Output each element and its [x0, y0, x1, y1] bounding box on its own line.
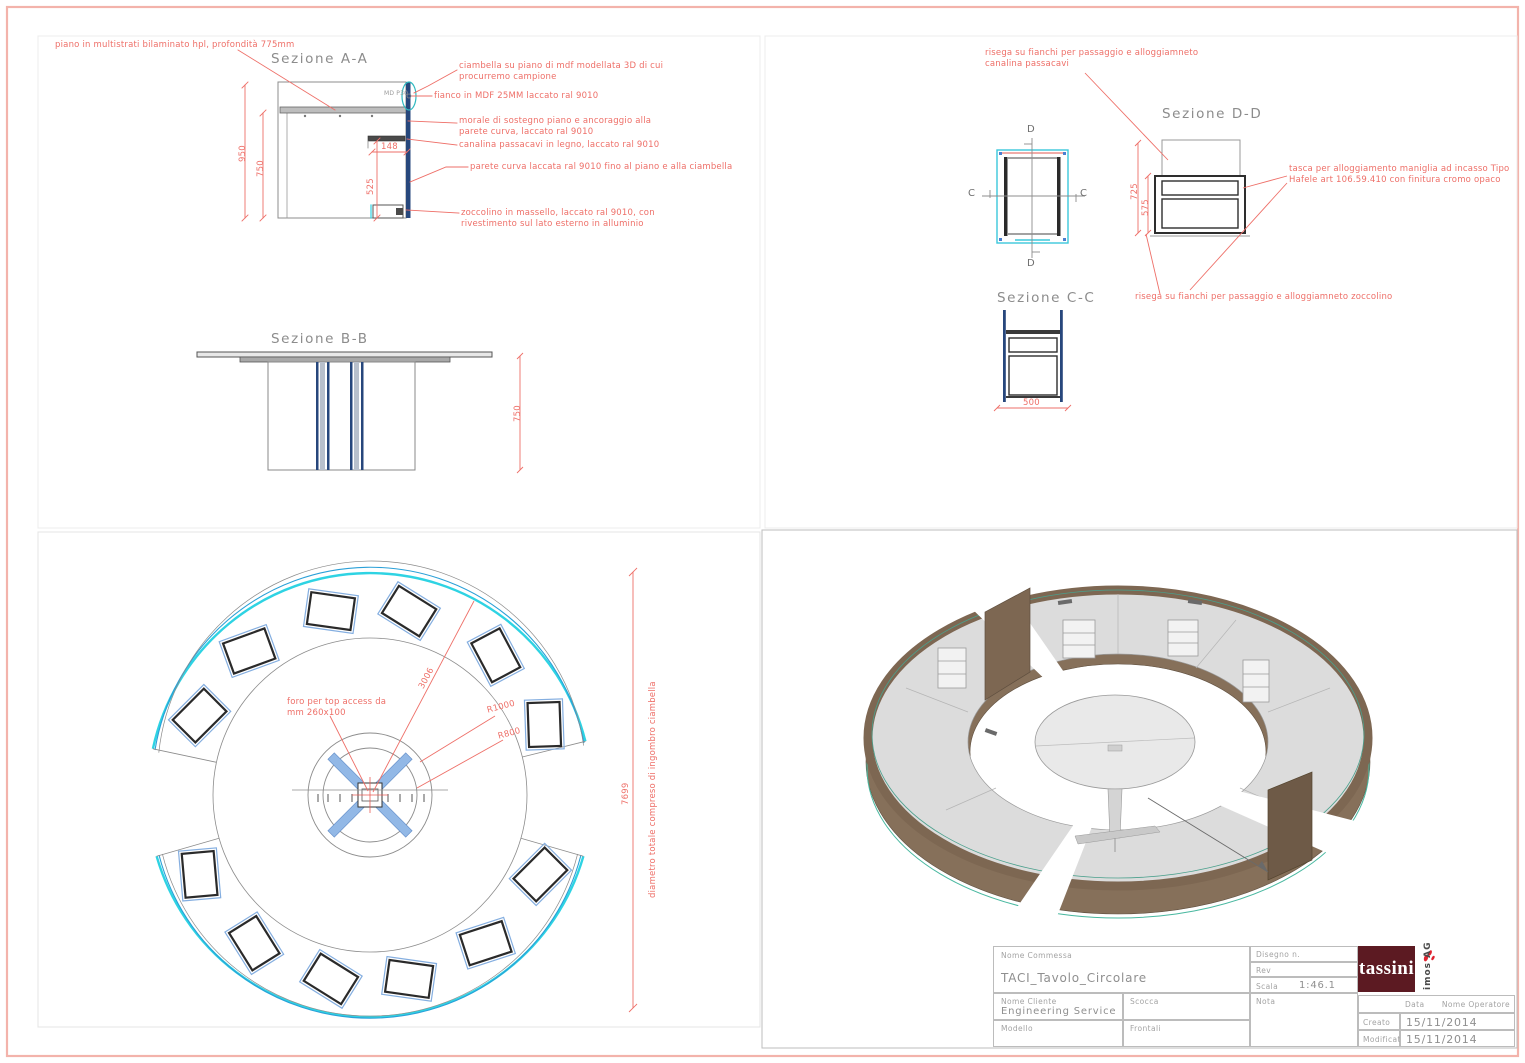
cut-label-c-right: C [1080, 188, 1087, 201]
scocca-label: Scocca [1130, 997, 1159, 1006]
rev-label: Rev [1256, 966, 1271, 975]
scala-label: Scala [1256, 982, 1278, 991]
circular-table-plan [153, 561, 637, 1018]
dim-575: 575 [1141, 199, 1152, 216]
nome-commessa-value: TACI_Tavolo_Circolare [1001, 971, 1147, 985]
annotation-piano: piano in multistrati bilaminato hpl, pro… [55, 40, 295, 51]
creato-label-cell: Creato [1358, 1013, 1400, 1030]
drawing-sheet: piano in multistrati bilaminato hpl, pro… [0, 0, 1525, 1063]
annotation-tasca: tasca per alloggiamento maniglia ad inca… [1289, 164, 1514, 185]
dim-750-bb: 750 [513, 405, 524, 422]
dim-725: 725 [1130, 183, 1141, 200]
scala-cell: Scala 1:46.1 [1250, 977, 1358, 993]
modello-cell: Modello [993, 1020, 1123, 1047]
creato-label: Creato [1363, 1018, 1390, 1027]
frontali-cell: Frontali [1123, 1020, 1250, 1047]
modificato-value: 15/11/2014 [1406, 1033, 1477, 1046]
isometric-view [866, 548, 1390, 960]
dim-750-aa: 750 [256, 160, 267, 177]
nota-label: Nota [1256, 997, 1275, 1006]
annotation-zoccolino: zoccolino in massello, laccato ral 9010,… [461, 208, 693, 229]
scala-value: 1:46.1 [1299, 980, 1336, 991]
cut-label-d-bottom: D [1027, 258, 1035, 271]
disegno-label: Disegno n. [1256, 950, 1300, 959]
section-bb-drawing [197, 352, 523, 473]
section-cc-title: Sezione C-C [997, 290, 1095, 307]
data-label: Data [1405, 1000, 1425, 1009]
hatch-label: MD P30 [384, 90, 408, 98]
annotation-canalina: canalina passacavi in legno, laccato ral… [459, 140, 659, 151]
creato-value-cell: 15/11/2014 [1400, 1013, 1515, 1030]
modificato-value-cell: 15/11/2014 [1400, 1030, 1515, 1047]
tassini-logo-text: tassini [1359, 958, 1414, 980]
scocca-cell: Scocca [1123, 993, 1250, 1020]
cut-label-d-top: D [1027, 124, 1035, 137]
modificato-label-cell: Modificato [1358, 1030, 1400, 1047]
nota-cell: Nota [1250, 993, 1358, 1047]
annotation-parete: parete curva laccata ral 9010 fino al pi… [470, 162, 732, 173]
commessa-cell: Nome Commessa TACI_Tavolo_Circolare [993, 946, 1250, 993]
frontali-label: Frontali [1130, 1024, 1161, 1033]
annotation-diametro: diametro totale compreso di ingombro cia… [648, 681, 659, 898]
imos-logo-text: imos AG [1423, 942, 1433, 991]
creato-value: 15/11/2014 [1406, 1016, 1477, 1029]
center-table-plan [292, 733, 448, 857]
annotation-foro: foro per top access da mm 260x100 [287, 697, 405, 718]
dim-500: 500 [1023, 398, 1040, 409]
annotation-risega-canalina: risega su fianchi per passaggio e allogg… [985, 48, 1223, 69]
dim-7699: 7699 [621, 783, 632, 805]
section-cc-drawing [994, 310, 1071, 411]
annotation-ciambella: ciambella su piano di mdf modellata 3D d… [459, 61, 677, 82]
dim-950: 950 [238, 145, 249, 162]
modello-label: Modello [1001, 1024, 1033, 1033]
section-dd-title: Sezione D-D [1162, 106, 1262, 123]
drawing-geometry [0, 0, 1525, 1063]
section-bb-title: Sezione B-B [271, 331, 369, 348]
nome-cliente-value: Engineering Service [1001, 1006, 1116, 1017]
annotation-risega-zoccolino: risega su fianchi per passaggio e allogg… [1135, 292, 1392, 303]
operatore-label: Nome Operatore [1442, 1000, 1510, 1009]
drawer-unit-plan [982, 138, 1085, 258]
cliente-cell: Nome Cliente Engineering Service [993, 993, 1123, 1020]
annotation-morale: morale di sostegno piano e ancoraggio al… [459, 116, 671, 137]
section-aa-title: Sezione A-A [271, 51, 368, 68]
dim-525: 525 [366, 178, 377, 195]
tassini-logo: tassini [1358, 946, 1415, 992]
cut-label-c-left: C [968, 188, 975, 201]
dim-148: 148 [381, 142, 398, 153]
nome-commessa-label: Nome Commessa [1001, 951, 1072, 960]
data-header-cell: Data Nome Operatore [1358, 995, 1515, 1013]
disegno-cell: Disegno n. [1250, 946, 1358, 962]
nome-cliente-label: Nome Cliente [1001, 997, 1057, 1006]
rev-cell: Rev [1250, 962, 1358, 977]
annotation-fianco: fianco in MDF 25MM laccato ral 9010 [434, 91, 598, 102]
title-block: Nome Commessa TACI_Tavolo_Circolare Dise… [993, 946, 1515, 1047]
section-aa-drawing [238, 50, 468, 221]
